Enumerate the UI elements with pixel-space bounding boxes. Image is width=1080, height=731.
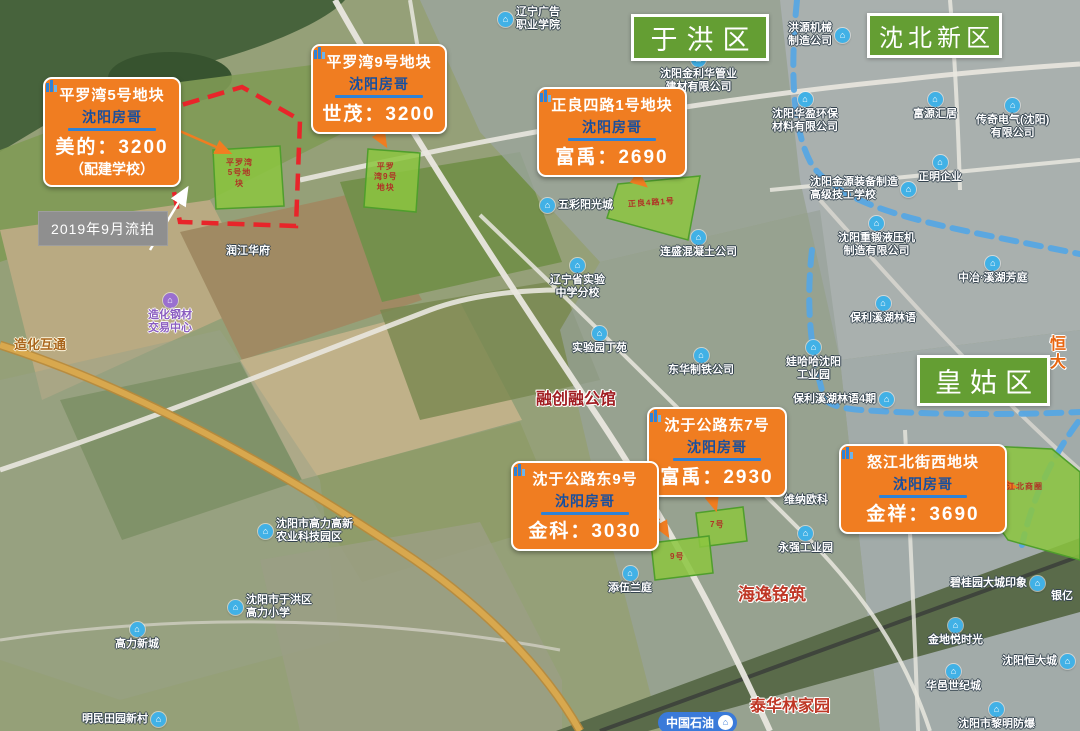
school-icon: ⌂ xyxy=(498,12,513,27)
poi-shiyan-yuandingyuan: ⌂实验园丁苑 xyxy=(572,326,627,355)
brand-logo: 沈阳房哥 xyxy=(319,74,439,98)
poi-zhongye-xihu-fangting: ⌂中冶·溪湖芳庭 xyxy=(958,256,1028,285)
callout-shenyu-east-7: 沈于公路东7号 沈阳房哥 富禹：2930 xyxy=(647,407,787,497)
poi-wucai-sunshine-city: ⌂五彩阳光城 xyxy=(540,198,613,213)
parcel-title: 怒江北街西地块 xyxy=(847,451,999,472)
parcel-label-no9: 9号 xyxy=(670,552,684,562)
park-icon: ⌂ xyxy=(258,524,273,539)
poi-mingmin-tianyuan: ⌂明民田园新村 xyxy=(82,712,166,727)
parcel-label-plw9: 平罗 湾9号 地块 xyxy=(374,162,397,193)
brand-underline xyxy=(879,495,967,498)
poi-jindi-yueshiguang: ⌂金地悦时光 xyxy=(928,618,983,647)
brand-name: 沈阳房哥 xyxy=(582,117,642,137)
poi-tianwu-lanting: ⌂添伍兰庭 xyxy=(608,566,652,595)
parcel-title: 平罗湾9号地块 xyxy=(319,51,439,72)
parcel-label-no7: 7号 xyxy=(710,520,724,530)
residence-icon: ⌂ xyxy=(1060,654,1075,669)
fuel-pump-icon: ⌂ xyxy=(718,715,733,730)
residence-icon: ⌂ xyxy=(1030,576,1045,591)
company-icon: ⌂ xyxy=(798,526,813,541)
brand-logo: 沈阳房哥 xyxy=(519,491,651,515)
satellite-map[interactable]: ⌂辽宁广告 职业学院 ⌂沈阳金利华管业 建材有限公司 ⌂洪源机械 制造公司 ⌂沈… xyxy=(0,0,1080,731)
failed-auction-note: 2019年9月流拍 xyxy=(38,211,168,246)
poi-fuyuan-huiju: ⌂富源汇居 xyxy=(913,92,957,121)
callout-shenyu-east-9: 沈于公路东9号 沈阳房哥 金科：3030 xyxy=(511,461,659,551)
brand-building-icon xyxy=(45,79,58,92)
parcel-note: （配建学校） xyxy=(51,159,173,179)
poi-huayi-shijicheng: ⌂华邑世纪城 xyxy=(926,664,981,693)
company-icon: ⌂ xyxy=(1005,98,1020,113)
callout-nujiang-north-west: 怒江北街西地块 沈阳房哥 金祥：3690 xyxy=(839,444,1007,534)
residence-icon: ⌂ xyxy=(623,566,638,581)
callout-pingluowan-9: 平罗湾9号地块 沈阳房哥 世茂：3200 xyxy=(311,44,447,134)
poi-zaohua-steel-market: ⌂造化钢材 交易中心 xyxy=(148,293,192,335)
brand-building-icon xyxy=(539,89,552,102)
poi-chuanqi-electric: ⌂传奇电气(沈阳) 有限公司 xyxy=(976,98,1049,140)
brand-name: 沈阳房哥 xyxy=(555,491,615,511)
brand-underline xyxy=(673,458,761,461)
poi-gaoli-agritech-park: ⌂沈阳市高力高新 农业科技园区 xyxy=(258,518,353,544)
poi-jinyuan-technical-school: ⌂沈阳金源装备制造 高级技工学校 xyxy=(810,176,916,202)
residence-icon: ⌂ xyxy=(540,198,555,213)
residence-icon: ⌂ xyxy=(985,256,1000,271)
company-icon: ⌂ xyxy=(691,230,706,245)
parcel-title: 正良四路1号地块 xyxy=(545,94,679,115)
poi-donghua-iron: ⌂东华制铁公司 xyxy=(668,348,734,377)
gas-station-label: 中国石油 xyxy=(666,714,714,731)
parcel-price: 美的：3200 xyxy=(51,132,173,159)
residence-icon: ⌂ xyxy=(151,712,166,727)
parcel-price: 富禹：2690 xyxy=(545,142,679,169)
callout-pingluowan-5: 平罗湾5号地块 沈阳房哥 美的：3200 （配建学校） xyxy=(43,77,181,187)
road-label-zaohua-interchange: 造化互通 xyxy=(14,334,66,353)
brand-underline xyxy=(541,512,629,515)
poi-yongqiang-industrial-park: ⌂永强工业园 xyxy=(778,526,833,555)
district-plate-huanggu: 皇姑区 xyxy=(917,355,1050,406)
residence-icon: ⌂ xyxy=(879,392,894,407)
brand-name: 沈阳房哥 xyxy=(349,74,409,94)
poi-hongyuan-machinery: ⌂洪源机械 制造公司 xyxy=(788,22,850,48)
parcel-price: 富禹：2930 xyxy=(655,462,779,489)
poi-wahaha-industrial-park: ⌂娃哈哈沈阳 工业园 xyxy=(786,340,841,382)
school-icon: ⌂ xyxy=(570,258,585,273)
callout-zhengliang-silu-1: 正良四路1号地块 沈阳房哥 富禹：2690 xyxy=(537,87,687,177)
market-icon: ⌂ xyxy=(163,293,178,308)
brand-name: 沈阳房哥 xyxy=(893,474,953,494)
brand-building-icon xyxy=(313,46,326,59)
company-icon: ⌂ xyxy=(989,702,1004,717)
poi-biguiyuan-dacheng: ⌂碧桂园大城印象 xyxy=(950,576,1045,591)
poi-weinaouke: 维纳欧科 xyxy=(784,494,828,507)
brand-underline xyxy=(335,95,423,98)
residence-icon: ⌂ xyxy=(948,618,963,633)
school-icon: ⌂ xyxy=(228,600,243,615)
residence-icon: ⌂ xyxy=(928,92,943,107)
poi-liansheng-concrete: ⌂连盛混凝土公司 xyxy=(660,230,737,259)
parcel-title: 沈于公路东9号 xyxy=(519,468,651,489)
dev-label-taihualin: 泰华林家园 xyxy=(750,698,830,716)
brand-logo: 沈阳房哥 xyxy=(847,474,999,498)
poi-huaying-environment: ⌂沈阳华盈环保 材料有限公司 xyxy=(772,92,838,134)
company-icon: ⌂ xyxy=(798,92,813,107)
residence-icon: ⌂ xyxy=(876,296,891,311)
dev-label-rongchuang: 融创融公馆 xyxy=(536,391,616,409)
poi-baoli-xihu-linyu-phase4: ⌂保利溪湖林语4期 xyxy=(793,392,894,407)
poi-liaoning-experimental-school: ⌂辽宁省实验 中学分校 xyxy=(550,258,605,300)
poi-baoli-xihu-linyu: ⌂保利溪湖林语 xyxy=(850,296,916,325)
brand-logo: 沈阳房哥 xyxy=(51,107,173,131)
poi-gaoli-primary-school: ⌂沈阳市于洪区 高力小学 xyxy=(228,594,312,620)
dev-label-hengda: 恒大 xyxy=(1050,336,1080,371)
gas-station-badge: 中国石油 ⌂ xyxy=(658,712,737,731)
brand-underline xyxy=(568,138,656,141)
residence-icon: ⌂ xyxy=(946,664,961,679)
parcel-label-plw5: 平罗湾 5号地 块 xyxy=(226,158,253,189)
brand-logo: 沈阳房哥 xyxy=(545,117,679,141)
brand-name: 沈阳房哥 xyxy=(687,437,747,457)
brand-building-icon xyxy=(649,409,662,422)
company-icon: ⌂ xyxy=(869,216,884,231)
poi-liming-fangbao: ⌂沈阳市黎明防爆 xyxy=(958,702,1035,731)
parcel-price: 金祥：3690 xyxy=(847,499,999,526)
dev-label-haiyi: 海逸铭筑 xyxy=(738,586,806,605)
poi-yinyi: 银亿 xyxy=(1051,590,1073,603)
poi-zhengming-enterprise: ⌂正明企业 xyxy=(918,155,962,184)
residence-icon: ⌂ xyxy=(592,326,607,341)
parcel-title: 沈于公路东7号 xyxy=(655,414,779,435)
brand-building-icon xyxy=(513,463,526,476)
company-icon: ⌂ xyxy=(806,340,821,355)
poi-zhongduan-hydraulic: ⌂沈阳重锻液压机 制造有限公司 xyxy=(838,216,915,258)
poi-runjiang-huafu: 润江华府 xyxy=(226,245,270,258)
company-icon: ⌂ xyxy=(933,155,948,170)
parcel-title: 平罗湾5号地块 xyxy=(51,84,173,105)
residence-icon: ⌂ xyxy=(130,622,145,637)
district-plate-yuhong: 于洪区 xyxy=(631,14,769,61)
brand-logo: 沈阳房哥 xyxy=(655,437,779,461)
poi-shenyang-hengdacheng: ⌂沈阳恒大城 xyxy=(1002,654,1075,669)
parcel-price: 世茂：3200 xyxy=(319,99,439,126)
district-plate-shenbei: 沈北新区 xyxy=(867,13,1002,58)
parcel-price: 金科：3030 xyxy=(519,516,651,543)
brand-building-icon xyxy=(841,446,854,459)
poi-gaoli-xincheng: ⌂高力新城 xyxy=(115,622,159,651)
company-icon: ⌂ xyxy=(694,348,709,363)
school-icon: ⌂ xyxy=(901,182,916,197)
brand-name: 沈阳房哥 xyxy=(82,107,142,127)
poi-liaoning-ad-college: ⌂辽宁广告 职业学院 xyxy=(498,6,560,32)
brand-underline xyxy=(68,128,156,131)
company-icon: ⌂ xyxy=(835,28,850,43)
